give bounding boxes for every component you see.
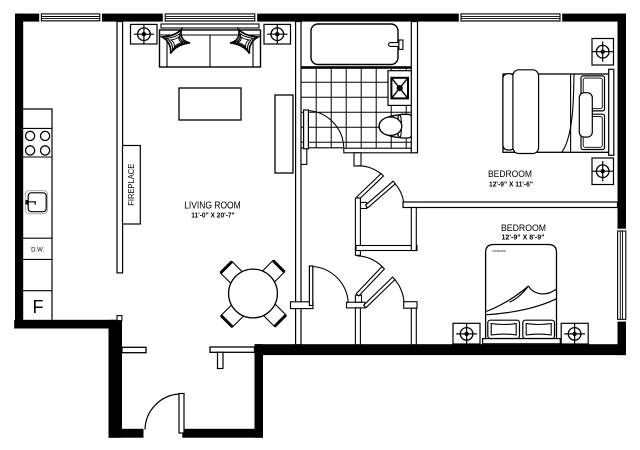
svg-text:11'-0" X 20'-7": 11'-0" X 20'-7" bbox=[191, 210, 235, 219]
svg-text:D.W.: D.W. bbox=[31, 248, 44, 254]
svg-text:STANDARD: STANDARD bbox=[492, 249, 506, 253]
svg-text:F: F bbox=[33, 297, 44, 317]
svg-text:FIREPLACE: FIREPLACE bbox=[127, 164, 136, 206]
svg-text:12'-9" X 11'-6": 12'-9" X 11'-6" bbox=[489, 179, 533, 188]
svg-text:12'-9" X 8'-9": 12'-9" X 8'-9" bbox=[502, 233, 545, 242]
